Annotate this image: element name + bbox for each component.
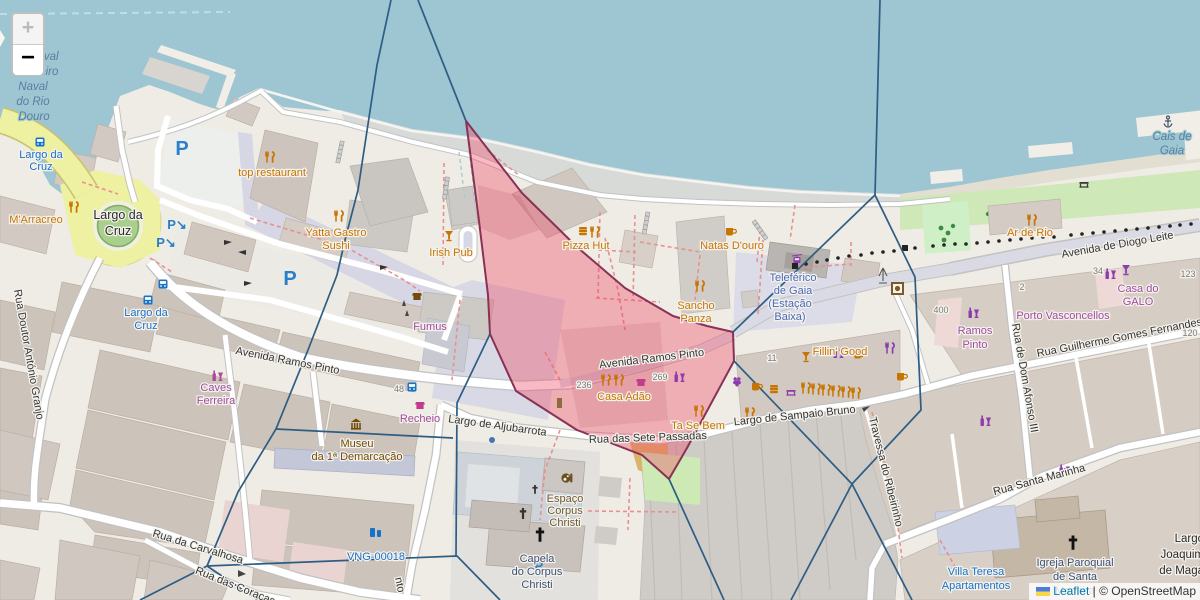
svg-text:123: 123 <box>1180 269 1195 279</box>
svg-text:de Gaia: de Gaia <box>774 285 813 297</box>
svg-text:Capela: Capela <box>520 553 556 565</box>
svg-text:Irish Pub: Irish Pub <box>429 247 472 259</box>
svg-text:da 1ª Demarcação: da 1ª Demarcação <box>312 451 403 463</box>
svg-text:Casa do: Casa do <box>1118 283 1159 295</box>
svg-text:Ramos: Ramos <box>958 325 993 337</box>
svg-text:Igreja Paroquial: Igreja Paroquial <box>1036 557 1113 569</box>
svg-text:Porto Vasconcellos: Porto Vasconcellos <box>1016 310 1110 322</box>
svg-text:Largo da: Largo da <box>19 149 63 161</box>
svg-text:Casa Adão: Casa Adão <box>597 391 651 403</box>
svg-text:(Estação: (Estação <box>768 298 811 310</box>
svg-text:Corpus: Corpus <box>547 505 583 517</box>
svg-text:48: 48 <box>394 384 404 394</box>
svg-text:Cais de: Cais de <box>1153 131 1192 143</box>
svg-text:Cruz: Cruz <box>105 224 131 238</box>
svg-text:de Santa: de Santa <box>1053 571 1098 583</box>
svg-text:Museu: Museu <box>340 438 373 450</box>
svg-text:Baixa): Baixa) <box>774 311 805 323</box>
svg-text:Yatta Gastro: Yatta Gastro <box>306 227 367 239</box>
svg-text:120: 120 <box>1182 328 1197 338</box>
svg-text:P↘: P↘ <box>167 217 187 232</box>
svg-text:34: 34 <box>1093 266 1103 276</box>
svg-text:Natas D'ouro: Natas D'ouro <box>700 240 764 252</box>
svg-text:Ferreira: Ferreira <box>197 395 236 407</box>
svg-text:Naval: Naval <box>18 81 48 93</box>
svg-text:Christi: Christi <box>549 517 580 529</box>
svg-text:Douro: Douro <box>18 111 50 123</box>
svg-text:Sushi: Sushi <box>322 240 350 252</box>
svg-text:Apartamentos: Apartamentos <box>942 580 1011 592</box>
svg-text:400: 400 <box>933 305 948 315</box>
svg-text:Joaquim: Joaquim <box>1161 549 1200 561</box>
svg-text:do Rio: do Rio <box>16 96 50 108</box>
svg-text:Cruz: Cruz <box>134 320 157 332</box>
svg-text:Christi: Christi <box>521 579 552 591</box>
svg-text:Caves: Caves <box>200 382 232 394</box>
svg-text:VNG-00018: VNG-00018 <box>347 551 405 563</box>
svg-text:Cruz: Cruz <box>29 161 52 173</box>
svg-text:top restaurant: top restaurant <box>238 167 306 179</box>
svg-text:Ar de Rio: Ar de Rio <box>1007 227 1053 239</box>
svg-text:P: P <box>175 138 188 160</box>
svg-text:Gaia: Gaia <box>1160 145 1184 157</box>
svg-text:Fillin' Good: Fillin' Good <box>813 346 868 358</box>
svg-text:P: P <box>283 268 296 290</box>
svg-text:Largo da: Largo da <box>124 307 168 319</box>
svg-text:Teleférico: Teleférico <box>769 272 816 284</box>
svg-text:Fumus: Fumus <box>413 321 447 333</box>
svg-text:Villa Teresa: Villa Teresa <box>948 566 1005 578</box>
svg-text:2: 2 <box>1019 282 1024 292</box>
svg-text:Ta Se Bem: Ta Se Bem <box>671 420 725 432</box>
svg-text:11: 11 <box>767 353 776 363</box>
svg-text:GALO: GALO <box>1123 296 1154 308</box>
svg-text:Largo: Largo <box>1175 533 1200 545</box>
svg-text:de Maga: de Maga <box>1159 565 1200 577</box>
svg-text:Espaço: Espaço <box>547 493 584 505</box>
svg-text:M'Arracreo: M'Arracreo <box>9 214 62 226</box>
svg-text:Panza: Panza <box>680 313 712 325</box>
svg-text:236: 236 <box>576 380 591 390</box>
svg-text:Sancho: Sancho <box>677 300 714 312</box>
svg-text:do Corpus: do Corpus <box>512 566 563 578</box>
svg-text:Largo da: Largo da <box>93 208 142 222</box>
svg-text:Pinto: Pinto <box>962 339 987 351</box>
svg-text:Recheio: Recheio <box>400 413 440 425</box>
svg-text:P↘: P↘ <box>156 235 176 250</box>
svg-text:Pizza Hut: Pizza Hut <box>562 240 609 252</box>
svg-text:269: 269 <box>652 372 667 382</box>
